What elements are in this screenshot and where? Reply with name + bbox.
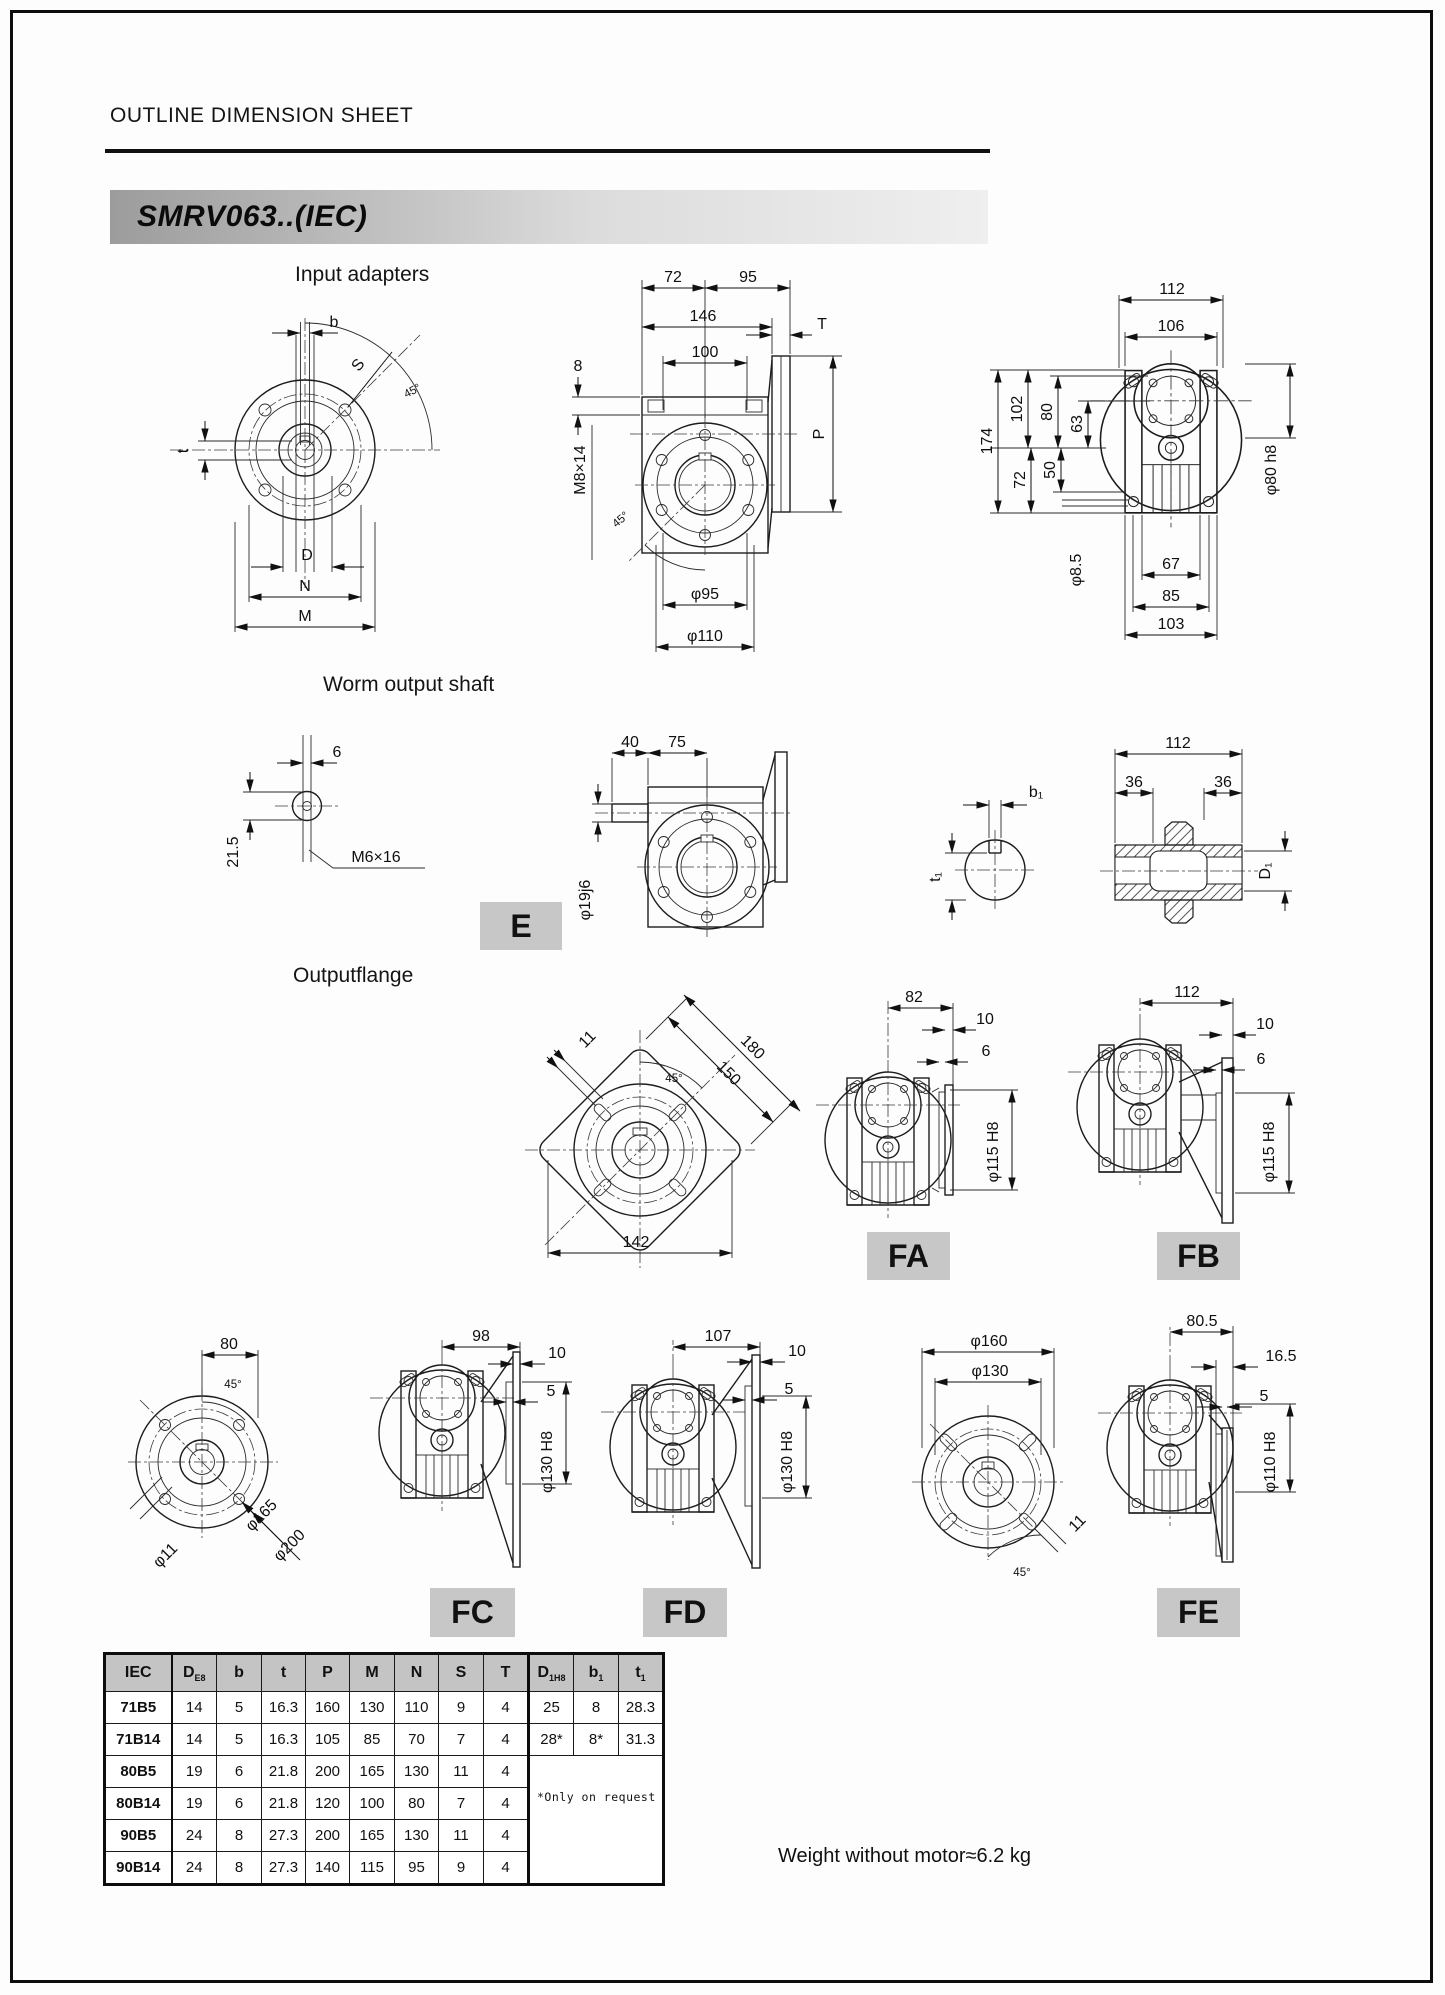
table-note: *Only on request xyxy=(537,1790,656,1804)
table-cell: 130 xyxy=(395,1820,439,1852)
badge-fa: FA xyxy=(867,1232,950,1280)
fa-geometry xyxy=(816,1000,1018,1218)
table-cell: 71B14 xyxy=(105,1724,172,1756)
dim-label: 106 xyxy=(1158,318,1185,335)
table-cell: 21.8 xyxy=(262,1788,306,1820)
dim-label: 45° xyxy=(1013,1567,1030,1579)
dim-label: t₁ xyxy=(927,872,944,882)
badge-fb-label: FB xyxy=(1177,1238,1220,1275)
col-header-d: DE8 xyxy=(172,1654,217,1692)
dim-label: M8×14 xyxy=(572,445,589,494)
table-row: 80B5 19 6 21.8 200 165 130 11 4 *Only on… xyxy=(105,1756,664,1788)
table-cell: 90B5 xyxy=(105,1820,172,1852)
page: OUTLINE DIMENSION SHEET SMRV063..(IEC) I… xyxy=(0,0,1445,1995)
dim-label: 6 xyxy=(333,744,342,761)
table-cell: 28* xyxy=(529,1724,574,1756)
dim-label: φ130 H8 xyxy=(779,1431,796,1493)
table-cell: 25 xyxy=(529,1692,574,1724)
col-header-t1: t1 xyxy=(619,1654,664,1692)
table-cell: 27.3 xyxy=(262,1852,306,1885)
dim-label: 5 xyxy=(785,1381,794,1398)
badge-fc-label: FC xyxy=(451,1594,494,1631)
table-cell: 140 xyxy=(306,1852,350,1885)
badge-e: E xyxy=(480,902,562,950)
table-cell: 160 xyxy=(306,1692,350,1724)
dim-label: 146 xyxy=(690,308,717,325)
dim-label: 180 xyxy=(737,1032,768,1063)
table-cell: 130 xyxy=(395,1756,439,1788)
dim-label: D₁ xyxy=(1257,863,1274,880)
table-cell: 70 xyxy=(395,1724,439,1756)
table-cell: 16.3 xyxy=(262,1692,306,1724)
table-cell: 80B5 xyxy=(105,1756,172,1788)
table-cell: 5 xyxy=(217,1692,262,1724)
drawing-fa: 82 10 6 φ115 H8 xyxy=(820,985,1035,1220)
col-header-iec: IEC xyxy=(105,1654,172,1692)
dim-label: N xyxy=(299,578,311,595)
dim-label: 72 xyxy=(664,269,682,286)
dim-label: 10 xyxy=(788,1343,806,1360)
dim-label: 98 xyxy=(472,1328,490,1345)
col-header-t2: T xyxy=(484,1654,529,1692)
col-header-b1: b1 xyxy=(574,1654,619,1692)
col-header-m: M xyxy=(350,1654,395,1692)
drawing-worm-shaft-end: 6 21.5 M6×16 xyxy=(180,720,430,885)
table-cell: 95 xyxy=(395,1852,439,1885)
dim-label: φ160 xyxy=(970,1333,1007,1350)
dim-label: b xyxy=(330,314,339,331)
badge-fd: FD xyxy=(643,1588,727,1637)
table-cell: 9 xyxy=(439,1692,484,1724)
dim-label: 5 xyxy=(547,1383,556,1400)
dim-label: φ115 H8 xyxy=(985,1122,1002,1183)
dim-label: φ200 xyxy=(271,1526,309,1564)
table-cell: 7 xyxy=(439,1724,484,1756)
badge-fe-label: FE xyxy=(1178,1594,1219,1631)
dim-label: φ110 H8 xyxy=(1262,1432,1279,1493)
table-cell: 80 xyxy=(395,1788,439,1820)
table-cell: 16.3 xyxy=(262,1724,306,1756)
table-cell: 110 xyxy=(395,1692,439,1724)
table-cell: 8 xyxy=(217,1820,262,1852)
drawing-input-adapter-face: b S 45° t D N M xyxy=(160,300,450,645)
drawing-worm-output-side: 40 75 φ19j6 xyxy=(555,715,810,995)
dim-label: 75 xyxy=(668,734,686,751)
col-header-d1: D1H8 xyxy=(529,1654,574,1692)
dim-label: φ165 xyxy=(243,1496,281,1534)
dim-label: t xyxy=(175,448,192,453)
dim-label: 16.5 xyxy=(1265,1348,1296,1365)
dim-label: S xyxy=(348,356,368,375)
dim-label: D xyxy=(301,547,313,564)
table-cell: 14 xyxy=(172,1724,217,1756)
dim-label: 85 xyxy=(1162,588,1180,605)
table-cell: 115 xyxy=(350,1852,395,1885)
table-cell: 4 xyxy=(484,1852,529,1885)
badge-fe: FE xyxy=(1157,1588,1240,1637)
title-rule xyxy=(105,149,990,153)
table-cell: 200 xyxy=(306,1820,350,1852)
dim-label: 95 xyxy=(739,269,757,286)
table-cell: 71B5 xyxy=(105,1692,172,1724)
dim-label: 10 xyxy=(976,1011,994,1028)
drawing-fd: 107 10 5 φ130 H8 xyxy=(600,1315,820,1587)
dim-label: 50 xyxy=(1042,461,1059,479)
dim-label: φ130 xyxy=(971,1363,1008,1380)
dim-label: 67 xyxy=(1162,556,1180,573)
square-flange-geometry xyxy=(525,995,800,1268)
dim-label: 112 xyxy=(1174,984,1200,1001)
dim-label: φ19j6 xyxy=(577,880,594,921)
dim-label: 10 xyxy=(1256,1016,1274,1033)
dim-label: 80 xyxy=(1039,403,1056,421)
table-cell: 24 xyxy=(172,1852,217,1885)
table-row: 71B5 14 5 16.3 160 130 110 9 4 25 8 28.3 xyxy=(105,1692,664,1724)
table-cell: 11 xyxy=(439,1820,484,1852)
page-title: OUTLINE DIMENSION SHEET xyxy=(110,104,413,128)
table-cell: 4 xyxy=(484,1724,529,1756)
dim-label: 102 xyxy=(1009,396,1026,423)
dim-label: 112 xyxy=(1159,281,1185,298)
dim-label: φ80 h8 xyxy=(1263,445,1280,496)
dim-label: φ130 H8 xyxy=(539,1431,556,1493)
dim-label: 5 xyxy=(1260,1388,1269,1405)
dim-label: 150 xyxy=(713,1058,744,1089)
drawing-fe: 80.5 16.5 5 φ110 H8 xyxy=(1120,1295,1310,1585)
badge-fb: FB xyxy=(1157,1232,1240,1280)
gearbox-worm-geometry xyxy=(592,752,790,937)
dim-label: 45° xyxy=(402,382,423,401)
dim-label: φ110 xyxy=(687,628,723,645)
model-name: SMRV063..(IEC) xyxy=(110,200,367,234)
table-cell: 105 xyxy=(306,1724,350,1756)
table-header-row: IEC DE8 b t P M N S T D1H8 b1 t1 xyxy=(105,1654,664,1692)
drawing-square-output-flange: 11 45° 180 150 142 xyxy=(420,1000,820,1275)
dim-label: 72 xyxy=(1012,471,1029,489)
table-cell: 27.3 xyxy=(262,1820,306,1852)
dim-label: 11 xyxy=(576,1028,600,1052)
table-cell: 19 xyxy=(172,1756,217,1788)
round-flange-geometry xyxy=(128,1350,300,1560)
drawing-input-adapter-rear: 112 106 174 102 80 63 72 50 φ8.5 67 85 1… xyxy=(955,255,1305,670)
table-cell: 130 xyxy=(350,1692,395,1724)
section-input-adapters: Input adapters xyxy=(295,263,429,287)
dim-label: M6×16 xyxy=(351,849,400,866)
table-cell: 14 xyxy=(172,1692,217,1724)
model-banner: SMRV063..(IEC) xyxy=(110,190,988,244)
table-cell: 4 xyxy=(484,1788,529,1820)
table-cell: 6 xyxy=(217,1788,262,1820)
dim-label: 11 xyxy=(1066,1512,1090,1536)
table-cell: 4 xyxy=(484,1756,529,1788)
dim-label: 80 xyxy=(220,1336,238,1353)
col-header-b: b xyxy=(217,1654,262,1692)
dim-label: 45° xyxy=(610,510,631,530)
table-cell: 8* xyxy=(574,1724,619,1756)
table-cell: 100 xyxy=(350,1788,395,1820)
col-header-s: S xyxy=(439,1654,484,1692)
dim-label: 103 xyxy=(1158,616,1185,633)
dim-label: 63 xyxy=(1069,415,1086,433)
drawing-hollow-shaft-section: b₁ t₁ 112 36 36 D₁ xyxy=(915,700,1310,950)
col-header-p: P xyxy=(306,1654,350,1692)
table-cell: 8 xyxy=(217,1852,262,1885)
dim-label: φ115 H8 xyxy=(1261,1122,1278,1183)
dim-label: φ11 xyxy=(150,1540,181,1571)
dim-label: P xyxy=(811,429,828,440)
table-cell: 31.3 xyxy=(619,1724,664,1756)
dim-label: 45° xyxy=(224,1379,241,1391)
table-cell: 4 xyxy=(484,1692,529,1724)
table-cell: 80B14 xyxy=(105,1788,172,1820)
table-cell: 11 xyxy=(439,1756,484,1788)
table-note-cell: *Only on request xyxy=(529,1756,664,1885)
dim-label: 142 xyxy=(623,1234,650,1251)
dim-label: 6 xyxy=(1257,1051,1266,1068)
gearbox-rear-geometry xyxy=(990,295,1296,640)
dim-label: 8 xyxy=(574,358,583,375)
drawing-round-flange-face: 80 45° φ11 φ165 φ200 xyxy=(85,1320,335,1585)
dim-label: 80.5 xyxy=(1186,1313,1217,1330)
dim-label: 107 xyxy=(705,1328,732,1345)
dim-label: 100 xyxy=(692,344,719,361)
table-cell: 8 xyxy=(574,1692,619,1724)
badge-fd-label: FD xyxy=(664,1594,707,1631)
section-output-flange: Outputflange xyxy=(293,964,413,988)
table-cell: 28.3 xyxy=(619,1692,664,1724)
table-cell: 7 xyxy=(439,1788,484,1820)
dim-label: 112 xyxy=(1165,735,1191,752)
badge-e-label: E xyxy=(510,908,531,945)
drawing-fc: 98 10 5 φ130 H8 xyxy=(385,1315,580,1587)
table-cell: 6 xyxy=(217,1756,262,1788)
weight-note: Weight without motor≈6.2 kg xyxy=(778,1845,1031,1868)
table-cell: 200 xyxy=(306,1756,350,1788)
dim-label: 36 xyxy=(1125,774,1143,791)
dim-label: 40 xyxy=(621,734,639,751)
table-cell: 4 xyxy=(484,1820,529,1852)
dim-label: 36 xyxy=(1214,774,1232,791)
table-cell: 21.8 xyxy=(262,1756,306,1788)
dim-label: φ95 xyxy=(691,586,719,603)
table-cell: 24 xyxy=(172,1820,217,1852)
table-cell: 85 xyxy=(350,1724,395,1756)
table-cell: 165 xyxy=(350,1756,395,1788)
dim-label: 21.5 xyxy=(225,836,242,867)
section-worm-output-shaft: Worm output shaft xyxy=(323,673,494,697)
col-header-t: t xyxy=(262,1654,306,1692)
drawing-fb: 112 10 6 φ115 H8 xyxy=(1075,970,1310,1230)
table-cell: 165 xyxy=(350,1820,395,1852)
dim-label: φ8.5 xyxy=(1068,554,1085,587)
badge-fa-label: FA xyxy=(888,1238,929,1275)
dim-label: 82 xyxy=(905,989,923,1006)
badge-fc: FC xyxy=(430,1588,515,1637)
table-cell: 19 xyxy=(172,1788,217,1820)
col-header-n: N xyxy=(395,1654,439,1692)
table-cell: 5 xyxy=(217,1724,262,1756)
table-cell: 120 xyxy=(306,1788,350,1820)
table-row: 71B14 14 5 16.3 105 85 70 7 4 28* 8* 31.… xyxy=(105,1724,664,1756)
drawing-input-adapter-side: 72 95 146 100 T 8 M8×14 45° φ95 φ110 P xyxy=(560,255,865,665)
dim-label: T xyxy=(817,316,827,333)
hollow-shaft-geometry xyxy=(945,749,1292,923)
dim-label: M xyxy=(298,608,311,625)
dim-label: 6 xyxy=(982,1043,991,1060)
dim-label: 45° xyxy=(665,1073,682,1085)
dim-label: 174 xyxy=(979,428,996,455)
dimension-table: IEC DE8 b t P M N S T D1H8 b1 t1 71B5 14… xyxy=(103,1652,665,1886)
dim-label: b₁ xyxy=(1029,784,1043,801)
table-cell: 9 xyxy=(439,1852,484,1885)
drawing-fe-flange-face: φ160 φ130 11 45° xyxy=(895,1320,1110,1595)
table-cell: 90B14 xyxy=(105,1852,172,1885)
dim-label: 10 xyxy=(548,1345,566,1362)
